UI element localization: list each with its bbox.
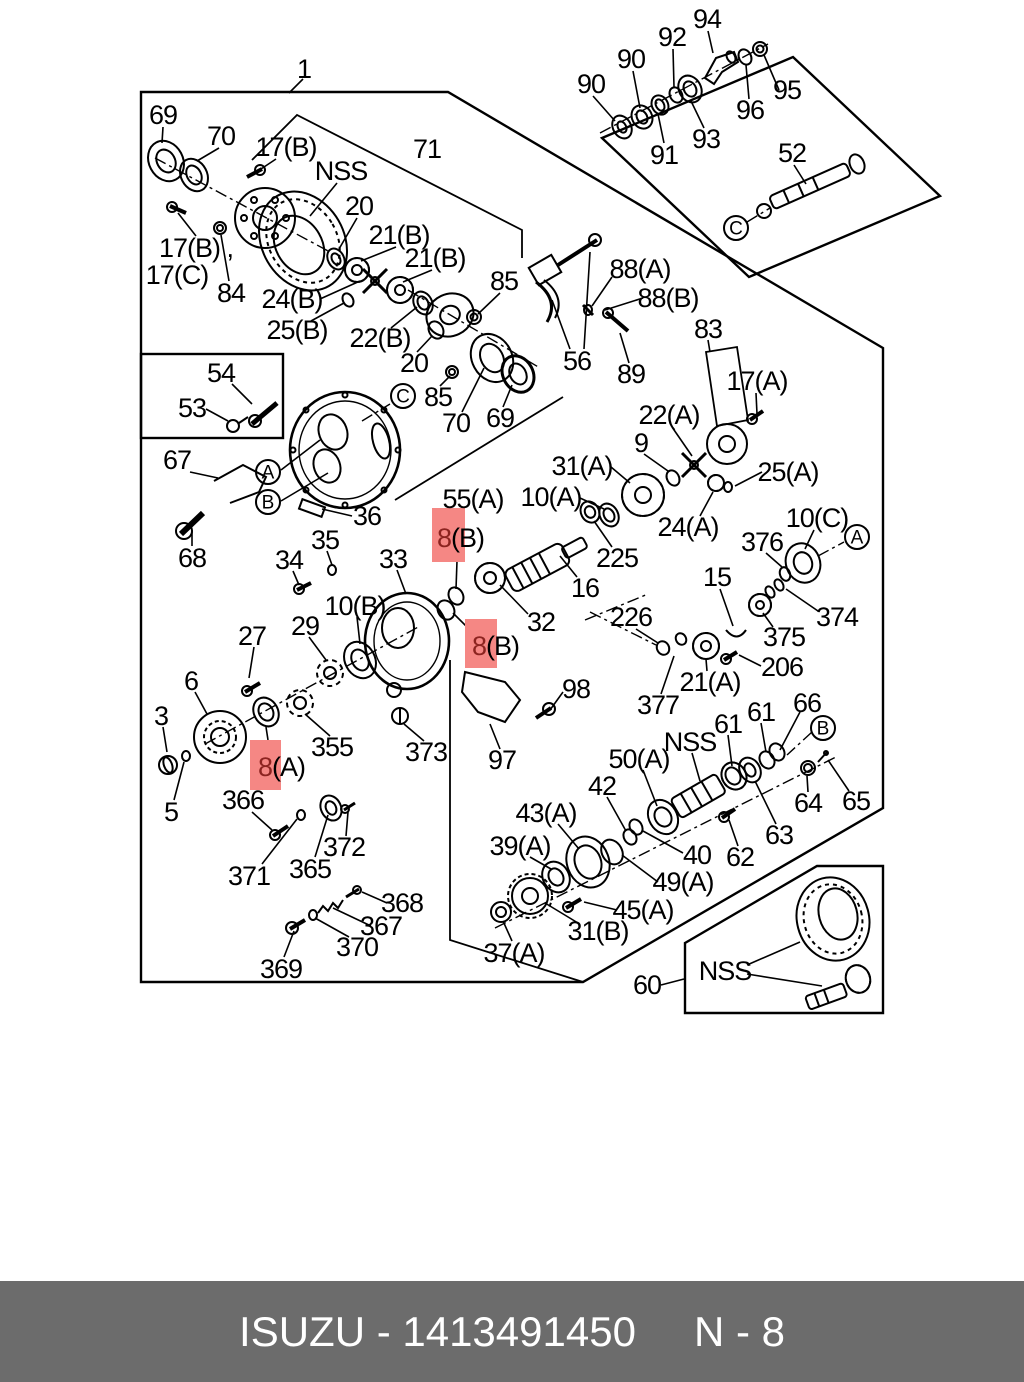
part-label-nss: NSS bbox=[699, 956, 752, 986]
part-label-3: 3 bbox=[154, 701, 168, 731]
parts-diagram-canvas: 1697017(B)NSS712021(B)21(B)8517(B) ,17(C… bbox=[0, 0, 1024, 1281]
part-label-95: 95 bbox=[773, 75, 801, 105]
circled-letter-b: B bbox=[256, 490, 280, 514]
part-label-24a: 24(A) bbox=[657, 512, 718, 542]
part-label-36: 36 bbox=[353, 501, 381, 531]
part-label-69: 69 bbox=[149, 100, 177, 130]
part-label-373: 373 bbox=[405, 737, 447, 767]
part-label-39a: 39(A) bbox=[489, 831, 550, 861]
part-label-nss: NSS bbox=[315, 156, 368, 186]
svg-text:B: B bbox=[262, 493, 275, 514]
part-label-56: 56 bbox=[563, 346, 591, 376]
part-label-369: 369 bbox=[260, 954, 302, 984]
part-label-20: 20 bbox=[400, 348, 428, 378]
part-label-97: 97 bbox=[488, 745, 516, 775]
part-label-17b: 17(B) , bbox=[159, 233, 233, 263]
part-label-33: 33 bbox=[379, 544, 407, 574]
part-label-1: 1 bbox=[297, 54, 311, 84]
part-label-94: 94 bbox=[693, 4, 722, 34]
part-label-25b: 25(B) bbox=[266, 315, 327, 345]
part-label-88b: 88(B) bbox=[637, 283, 698, 313]
svg-text:A: A bbox=[262, 463, 275, 484]
part-label-88a: 88(A) bbox=[609, 254, 670, 284]
footer-page-code: N - 8 bbox=[694, 1308, 785, 1356]
part-label-96: 96 bbox=[736, 95, 764, 125]
part-label-25a: 25(A) bbox=[757, 457, 818, 487]
svg-text:C: C bbox=[396, 387, 410, 408]
part-label-65: 65 bbox=[842, 786, 870, 816]
part-label-60: 60 bbox=[633, 970, 661, 1000]
svg-text:A: A bbox=[851, 528, 864, 549]
circled-letter-c: C bbox=[391, 384, 415, 408]
part-label-91: 91 bbox=[650, 140, 678, 170]
part-label-32: 32 bbox=[527, 607, 555, 637]
part-label-16: 16 bbox=[571, 573, 599, 603]
part-label-8b[interactable]: 8(B) bbox=[472, 631, 519, 661]
part-label-53: 53 bbox=[178, 393, 206, 423]
part-label-71: 71 bbox=[413, 134, 441, 164]
part-label-29: 29 bbox=[291, 611, 319, 641]
part-label-67: 67 bbox=[163, 445, 191, 475]
part-label-98: 98 bbox=[562, 674, 590, 704]
part-label-374: 374 bbox=[816, 602, 859, 632]
part-label-226: 226 bbox=[610, 602, 652, 632]
part-label-206: 206 bbox=[761, 652, 803, 682]
part-label-50a: 50(A) bbox=[608, 744, 669, 774]
part-label-9: 9 bbox=[634, 428, 648, 458]
part-label-70: 70 bbox=[442, 408, 470, 438]
part-label-93: 93 bbox=[692, 124, 720, 154]
part-label-89: 89 bbox=[617, 359, 645, 389]
part-label-17c: 17(C) bbox=[146, 260, 209, 290]
drawing-top-right-group bbox=[608, 42, 867, 218]
footer-part-number: ISUZU - 1413491450 bbox=[239, 1308, 636, 1356]
part-label-68: 68 bbox=[178, 543, 206, 573]
part-label-49a: 49(A) bbox=[652, 867, 713, 897]
part-label-8a[interactable]: 8(A) bbox=[258, 752, 305, 782]
part-label-62: 62 bbox=[726, 842, 754, 872]
part-label-10b: 10(B) bbox=[324, 591, 385, 621]
part-label-40: 40 bbox=[683, 840, 711, 870]
part-label-21b: 21(B) bbox=[404, 243, 465, 273]
part-label-15: 15 bbox=[703, 562, 731, 592]
part-label-66: 66 bbox=[793, 688, 821, 718]
part-label-10c: 10(C) bbox=[786, 503, 849, 533]
part-label-92: 92 bbox=[658, 22, 686, 52]
part-label-17b: 17(B) bbox=[255, 132, 316, 162]
part-label-8b[interactable]: 8(B) bbox=[437, 523, 484, 553]
part-label-nss: NSS bbox=[664, 727, 717, 757]
part-label-85: 85 bbox=[490, 266, 518, 296]
part-label-55a: 55(A) bbox=[442, 484, 503, 514]
circled-letter-a: A bbox=[845, 525, 869, 549]
part-label-52: 52 bbox=[778, 138, 806, 168]
labels-layer: 1697017(B)NSS712021(B)21(B)8517(B) ,17(C… bbox=[146, 4, 870, 1000]
part-label-225: 225 bbox=[596, 543, 638, 573]
drawing-carrier-housing bbox=[290, 392, 401, 517]
part-label-90: 90 bbox=[577, 69, 605, 99]
part-label-54: 54 bbox=[207, 358, 236, 388]
part-label-35: 35 bbox=[311, 525, 339, 555]
part-label-366: 366 bbox=[222, 785, 264, 815]
svg-text:B: B bbox=[817, 719, 830, 740]
part-label-43a: 43(A) bbox=[515, 798, 576, 828]
parts-diagram-page: 1697017(B)NSS712021(B)21(B)8517(B) ,17(C… bbox=[0, 0, 1024, 1281]
part-label-37a: 37(A) bbox=[483, 938, 544, 968]
part-label-355: 355 bbox=[311, 732, 353, 762]
catalog-footer-bar: ISUZU - 1413491450 N - 8 bbox=[0, 1281, 1024, 1382]
circled-letter-a: A bbox=[256, 460, 280, 484]
part-label-34: 34 bbox=[275, 545, 304, 575]
part-label-375: 375 bbox=[763, 622, 805, 652]
part-label-63: 63 bbox=[765, 820, 793, 850]
part-label-64: 64 bbox=[794, 788, 823, 818]
part-label-17a: 17(A) bbox=[726, 366, 787, 396]
part-label-24b: 24(B) bbox=[261, 284, 322, 314]
svg-text:C: C bbox=[729, 219, 743, 240]
part-label-69: 69 bbox=[486, 403, 514, 433]
part-label-42: 42 bbox=[588, 771, 616, 801]
part-label-61: 61 bbox=[714, 709, 742, 739]
part-label-83: 83 bbox=[694, 314, 722, 344]
part-label-27: 27 bbox=[238, 621, 266, 651]
circled-letter-c: C bbox=[724, 216, 748, 240]
part-label-370: 370 bbox=[336, 932, 378, 962]
part-label-31a: 31(A) bbox=[551, 451, 612, 481]
part-label-371: 371 bbox=[228, 861, 270, 891]
part-label-84: 84 bbox=[217, 278, 246, 308]
part-label-20: 20 bbox=[345, 191, 373, 221]
part-label-377: 377 bbox=[637, 690, 679, 720]
circled-letter-b: B bbox=[811, 716, 835, 740]
part-label-45a: 45(A) bbox=[612, 895, 673, 925]
part-label-61: 61 bbox=[747, 697, 775, 727]
part-label-22a: 22(A) bbox=[638, 400, 699, 430]
part-label-10a: 10(A) bbox=[520, 482, 581, 512]
drawing-nss-gearset bbox=[787, 869, 878, 1010]
part-label-21a: 21(A) bbox=[679, 667, 740, 697]
part-label-90: 90 bbox=[617, 44, 645, 74]
part-label-6: 6 bbox=[184, 666, 198, 696]
part-label-70: 70 bbox=[207, 121, 235, 151]
part-label-376: 376 bbox=[741, 527, 783, 557]
part-label-5: 5 bbox=[164, 797, 178, 827]
part-label-372: 372 bbox=[323, 832, 365, 862]
